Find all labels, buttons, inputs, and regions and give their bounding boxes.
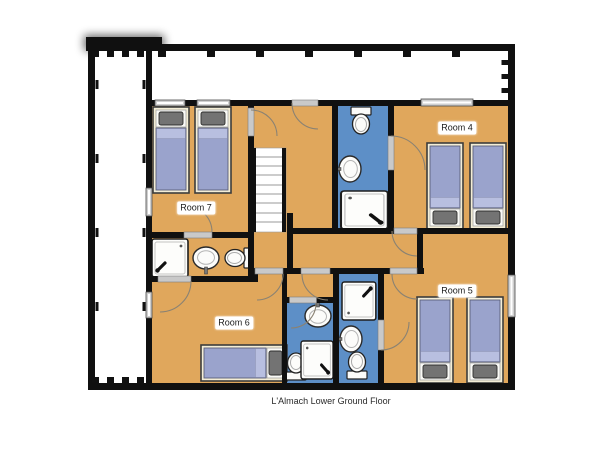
room-label-room-6: Room 6 (215, 317, 253, 330)
room4-bed-2 (470, 143, 506, 229)
shower (301, 341, 333, 379)
room5-bed-1 (417, 297, 453, 383)
window (155, 100, 185, 106)
plan-caption: L'Almach Lower Ground Floor (271, 395, 390, 407)
toilet (351, 107, 371, 134)
floor-plan: Room 4 Room 5 Room 6 Room 7 L'Almach Low… (0, 0, 600, 450)
shower (341, 191, 388, 229)
room4-bed-1 (427, 143, 463, 229)
room6-bed (201, 345, 287, 381)
room-label-room-5: Room 5 (438, 285, 476, 298)
shower (152, 239, 188, 277)
room7-bed-2 (195, 107, 231, 193)
toilet (225, 248, 252, 268)
room7-bed-1 (153, 107, 189, 193)
window (146, 188, 152, 216)
room-label-room-4: Room 4 (438, 122, 476, 135)
staircase (252, 148, 286, 232)
room5-bed-2 (467, 297, 503, 383)
room-label-room-7: Room 7 (177, 202, 215, 215)
window (421, 99, 473, 106)
shower (342, 282, 376, 320)
window (146, 292, 152, 318)
toilet (347, 352, 367, 379)
floor-plan-drawing (0, 0, 600, 450)
window (197, 100, 230, 106)
window (508, 275, 515, 317)
